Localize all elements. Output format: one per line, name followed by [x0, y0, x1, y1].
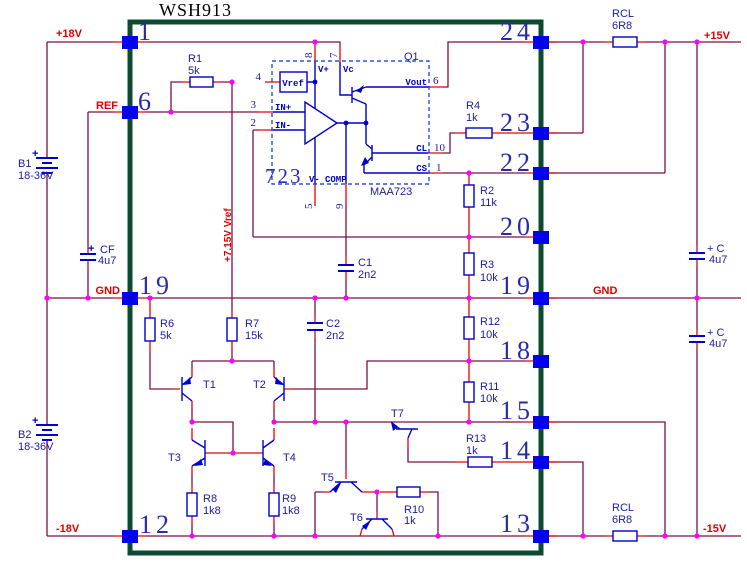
pin-number-15: 15: [500, 396, 534, 425]
r6-ref: R6: [160, 318, 174, 330]
c1-val: 2n2: [358, 269, 376, 281]
ic-pin-9: 9: [334, 203, 346, 209]
ic-terminal-inminus: IN-: [275, 121, 291, 131]
pin-number-14: 14: [500, 436, 534, 465]
ic-terminal-vout: Vout: [405, 78, 427, 88]
pad-pin20: [533, 231, 549, 244]
pin-number-22: 22: [500, 148, 534, 177]
pin-number-1: 1: [138, 17, 155, 46]
r8-val: 1k8: [203, 505, 221, 517]
b2-plus-sign: +: [32, 415, 38, 427]
junction-dot: [271, 533, 276, 538]
t7-ref: T7: [391, 408, 404, 420]
pad-pin14: [533, 456, 549, 469]
ic-pin-10: 10: [434, 142, 446, 154]
junction-dot: [466, 234, 471, 239]
schematic-canvas: WSH913: [0, 0, 747, 567]
net-label-vref-rail: +7.15V Vref: [223, 208, 234, 262]
pad-pin6: [122, 106, 138, 119]
t1-arrow: [183, 377, 191, 385]
r11-body: [464, 382, 474, 402]
ic-terminal-cs: CS: [416, 164, 427, 174]
junction-dot: [466, 170, 471, 175]
ic-designator-q1: Q1: [404, 51, 419, 63]
r7-body: [227, 318, 237, 341]
pad-pin1: [122, 36, 138, 49]
pad-pin18: [533, 355, 549, 368]
r2-ref: R2: [480, 185, 494, 197]
net-label-plus15v: +15V: [704, 30, 731, 42]
b2-val: 18-36V: [18, 441, 54, 453]
ic-terminal-vminus: V-: [309, 175, 320, 185]
cf-val: 4u7: [98, 255, 116, 267]
c2-val: 2n2: [326, 330, 344, 342]
r8-ref: R8: [203, 493, 217, 505]
t4-arrow: [263, 459, 272, 466]
ic-terminal-vref: Vref: [282, 79, 304, 89]
pad-pin15: [533, 416, 549, 429]
r12-body: [464, 317, 474, 339]
r8-body: [187, 493, 197, 516]
pad-pin22: [533, 167, 549, 180]
r9-val: 1k8: [282, 505, 300, 517]
t2-arrow: [275, 377, 283, 385]
ic-part-number: MAA723: [370, 186, 412, 198]
junction-dot: [189, 419, 194, 424]
junction-dot: [312, 295, 317, 300]
junction-dot: [312, 419, 317, 424]
net-label-gnd-right: GND: [593, 285, 618, 297]
r6-val: 5k: [160, 330, 172, 342]
r12-ref: R12: [480, 316, 500, 328]
junction-dot: [229, 358, 234, 363]
r4-body: [466, 128, 492, 138]
c-bottom-val: 4u7: [709, 338, 727, 350]
rcl-top-val: 6R8: [612, 20, 632, 32]
pad-pin12: [122, 530, 138, 543]
r3-val: 10k: [480, 272, 498, 284]
b2-ref: B2: [18, 429, 31, 441]
ic-terminal-cl: CL: [416, 144, 427, 154]
r1-val: 5k: [188, 65, 200, 77]
b1-plus-sign: +: [32, 148, 38, 160]
r3-ref: R3: [480, 259, 494, 271]
r13-val: 1k: [466, 445, 478, 457]
r1-ref: R1: [188, 53, 202, 65]
ic-pin-3: 3: [251, 99, 257, 111]
junction-dot: [694, 533, 699, 538]
junction-dot: [580, 39, 585, 44]
r3-body: [464, 253, 474, 275]
r9-ref: R9: [282, 493, 296, 505]
pad-pin19-right: [533, 292, 549, 305]
module-title: WSH913: [159, 0, 232, 20]
pin-number-24: 24: [500, 17, 534, 46]
pin-number-23: 23: [500, 108, 534, 137]
r9-body: [269, 493, 279, 516]
schematic-page: WSH913: [0, 0, 747, 567]
junction-dot: [662, 533, 667, 538]
junction-dot: [466, 358, 471, 363]
r2-val: 11k: [480, 197, 497, 209]
ic-terminal-vplus: V+: [318, 65, 329, 75]
pin-number-12: 12: [139, 510, 173, 539]
pad-pin19-left: [122, 292, 138, 305]
pin-number-6: 6: [138, 87, 155, 116]
r4-ref: R4: [466, 100, 480, 112]
net-label-gnd-left: GND: [96, 285, 121, 297]
r2-body: [464, 185, 474, 207]
ic-terminal-comp: COMP: [325, 175, 347, 185]
pad-pin24: [533, 36, 549, 49]
pin-number-19-left: 19: [139, 271, 173, 300]
pin-number-20: 20: [500, 212, 534, 241]
junction-dot: [662, 39, 667, 44]
t6-ref: T6: [350, 512, 363, 524]
pad-pin13: [533, 530, 549, 543]
net-label-plus18v: +18V: [56, 28, 83, 40]
ic-junction-dot: [364, 121, 369, 126]
t1-ref: T1: [203, 379, 216, 391]
junction-dot: [374, 489, 379, 494]
pin-number-13: 13: [500, 509, 534, 538]
junction-dot: [435, 533, 440, 538]
ic-pin-6: 6: [433, 75, 439, 87]
ic-terminal-inplus: IN+: [275, 103, 291, 113]
net-label-ref: REF: [96, 100, 118, 112]
ic-723-label: 723: [265, 164, 303, 188]
net-label-minus18v: -18V: [56, 523, 80, 535]
junction-dot: [44, 295, 49, 300]
t5-arrow: [332, 483, 341, 493]
r7-ref: R7: [245, 318, 259, 330]
q1a-arrow: [356, 85, 364, 93]
r1-body: [190, 77, 213, 87]
r13-ref: R13: [466, 433, 486, 445]
ic-pin-2: 2: [251, 117, 257, 129]
c2-ref: C2: [326, 318, 340, 330]
rcl-top-ref: RCL: [612, 8, 634, 20]
r4-val: 1k: [466, 112, 478, 124]
battery-b2-symbol: [36, 425, 58, 440]
r13-body: [468, 457, 492, 467]
t2-ref: T2: [253, 379, 266, 391]
r11-ref: R11: [480, 381, 499, 393]
pin-number-18: 18: [500, 336, 534, 365]
rcl-bottom-val: 6R8: [612, 514, 632, 526]
junction-dot: [466, 419, 471, 424]
r6-body: [145, 318, 155, 341]
junction-dot: [168, 109, 173, 114]
b1-val: 18-36V: [18, 170, 54, 182]
ic-pin-4: 4: [256, 71, 262, 83]
junction-dot: [343, 295, 348, 300]
junction-dot: [312, 39, 317, 44]
ic-pin-5: 5: [303, 203, 315, 209]
cf-plus-sign: +: [88, 243, 94, 255]
junction-dot: [271, 419, 276, 424]
rcl-bottom-ref: RCL: [612, 502, 634, 514]
ic-junction-dot: [344, 121, 349, 126]
r10-val: 1k: [404, 515, 416, 527]
ic-pin-7: 7: [328, 52, 340, 58]
junction-dot: [230, 450, 235, 455]
junction-dot: [466, 295, 471, 300]
junction-dot: [694, 295, 699, 300]
t5-ref: T5: [321, 472, 334, 484]
rcl-bottom-body: [613, 531, 637, 541]
net-label-minus15v: -15V: [703, 523, 727, 535]
junction-dot: [580, 533, 585, 538]
t4-ref: T4: [283, 452, 296, 464]
junction-dot: [229, 79, 234, 84]
junction-dot: [189, 533, 194, 538]
pin-number-19-right: 19: [500, 271, 534, 300]
ic-pin-8: 8: [303, 52, 315, 58]
t3-ref: T3: [168, 452, 181, 464]
junction-dot: [312, 533, 317, 538]
b1-ref: B1: [18, 158, 31, 170]
rcl-top-body: [613, 37, 637, 47]
pad-pin23: [533, 127, 549, 140]
c-top-val: 4u7: [709, 254, 727, 266]
r10-body: [397, 487, 420, 497]
ic-terminal-vc: Vc: [343, 65, 354, 75]
junction-dot: [343, 419, 348, 424]
junction-dot: [85, 295, 90, 300]
r7-val: 15k: [245, 330, 263, 342]
opamp-triangle: [305, 102, 337, 144]
ic-pin-1: 1: [436, 162, 442, 174]
r11-val: 10k: [480, 393, 498, 405]
c1-ref: C1: [358, 257, 372, 269]
junction-dot: [694, 39, 699, 44]
ic-junction-dot: [313, 80, 318, 85]
r12-val: 10k: [480, 329, 498, 341]
